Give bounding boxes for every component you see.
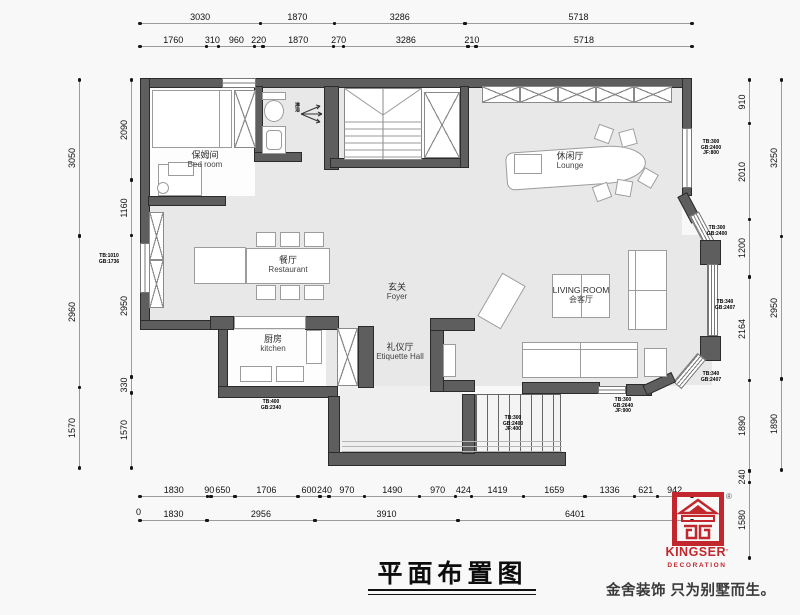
washbasin-bowl — [266, 130, 282, 150]
staircase — [344, 88, 422, 160]
dining-chair — [304, 232, 324, 247]
bar-stool — [615, 179, 634, 198]
dimension-zero: 0 — [136, 507, 141, 517]
elevator-shaft — [424, 92, 460, 158]
wall-foyer-horizontal — [430, 318, 475, 331]
dimension-row-top-1: 3030187032865718 — [140, 6, 692, 24]
logo-sub: DECORATION — [664, 559, 730, 572]
window-annotation: TB:300GB:2400 — [704, 226, 730, 237]
lounge-cabinet — [596, 86, 634, 103]
kitchen-sink — [240, 366, 272, 382]
tv-panel — [443, 344, 456, 377]
window-right-wall — [682, 128, 692, 188]
room-label-restaurant: 餐厅 Restaurant — [268, 255, 307, 275]
logo-tagline: 金舍装饰 只为别墅而生。 — [606, 579, 796, 600]
dimension-col-left-outer: 305029601570 — [64, 80, 80, 468]
wardrobe — [234, 90, 256, 148]
window-annotation: TB:340GB:2407 — [698, 372, 724, 383]
lounge-cabinet — [482, 86, 520, 103]
wall-kitchen-top-left — [210, 316, 234, 330]
cooktop — [276, 366, 304, 382]
wall-stair-right — [460, 86, 469, 168]
room-label-living: LIVING ROOM 会客厅 — [553, 285, 610, 305]
room-label-etiquette: 礼仪厅 Etiquette Hall — [376, 342, 424, 362]
sofa-long — [522, 342, 638, 378]
registered-mark: ® — [726, 492, 732, 501]
floor-plan-canvas: 淋浴 保姆间 Bed room 休闲厅 Lounge 餐厅 Restaurant… — [0, 0, 800, 615]
wall-living-bottom — [522, 382, 600, 394]
kitchen-counter — [306, 330, 322, 364]
dining-chair — [256, 232, 276, 247]
room-label-bedroom: 保姆间 Bed room — [188, 150, 223, 170]
sideboard — [194, 247, 246, 284]
dimension-col-left-inner: 2090116029503301570 — [116, 80, 132, 468]
window-annotation: TB:300GB:2400JF:800 — [698, 140, 724, 157]
hall-cabinet — [149, 260, 164, 308]
shower-arrows-icon — [298, 102, 326, 126]
room-label-lounge: 休闲厅 Lounge — [556, 151, 583, 171]
bar-sink — [514, 154, 542, 174]
dimension-row-bottom-1: 1830906501706600240970149097042414191659… — [140, 479, 692, 497]
lounge-cabinet — [634, 86, 672, 103]
room-label-kitchen: 厨房 kitchen — [260, 334, 285, 354]
shower-label: 淋浴 — [294, 102, 301, 112]
wall-duct — [358, 326, 374, 388]
dimension-col-right-inner: 91020101200216418902401580 — [734, 80, 750, 558]
dimension-col-right-outer: 325029501890 — [766, 80, 782, 470]
drawing-title: 平面布置图 — [370, 554, 535, 590]
side-table — [644, 348, 667, 377]
hall-cabinet — [149, 212, 164, 260]
toilet-tank — [262, 92, 286, 100]
window-annotation: TB:300GB:2400JF:400 — [500, 416, 526, 433]
wall-porch-left — [328, 396, 340, 456]
wall-kitchen-top-right — [305, 316, 339, 330]
lounge-cabinet — [558, 86, 596, 103]
dining-chair — [280, 232, 300, 247]
window-annotation: TB:400GB:2340 — [258, 400, 284, 411]
title-underline — [368, 589, 536, 595]
window-bottom-right — [598, 386, 626, 394]
porch-deck-lines — [342, 440, 562, 452]
dining-chair — [304, 285, 324, 300]
wall-porch-bottom — [328, 452, 566, 466]
window-top-wall — [222, 78, 256, 88]
kingser-logo-icon — [672, 492, 724, 546]
etiquette-cabinet — [337, 328, 358, 386]
dining-chair — [280, 285, 300, 300]
window-annotation: TB:300GB:2640JF:900 — [610, 398, 636, 415]
room-label-foyer: 玄关 Foyer — [387, 282, 407, 302]
bed — [152, 90, 232, 148]
toilet-bowl — [264, 100, 284, 122]
wall-bay-corner-1 — [700, 240, 721, 265]
dimension-row-bottom-2: 1830295639106401 — [140, 503, 692, 521]
kitchen-pass-counter — [234, 316, 306, 329]
logo-brand: KINGSER’ DECORATION — [664, 546, 730, 572]
lounge-cabinet — [520, 86, 558, 103]
dimension-row-top-2: 1760310960220187027032862105718 — [140, 29, 692, 47]
desk-chair — [157, 182, 169, 194]
wall-bedroom-bottom — [148, 196, 226, 206]
dining-chair — [256, 285, 276, 300]
sofa-single — [628, 250, 667, 330]
wall-kitchen-bottom — [218, 386, 338, 398]
